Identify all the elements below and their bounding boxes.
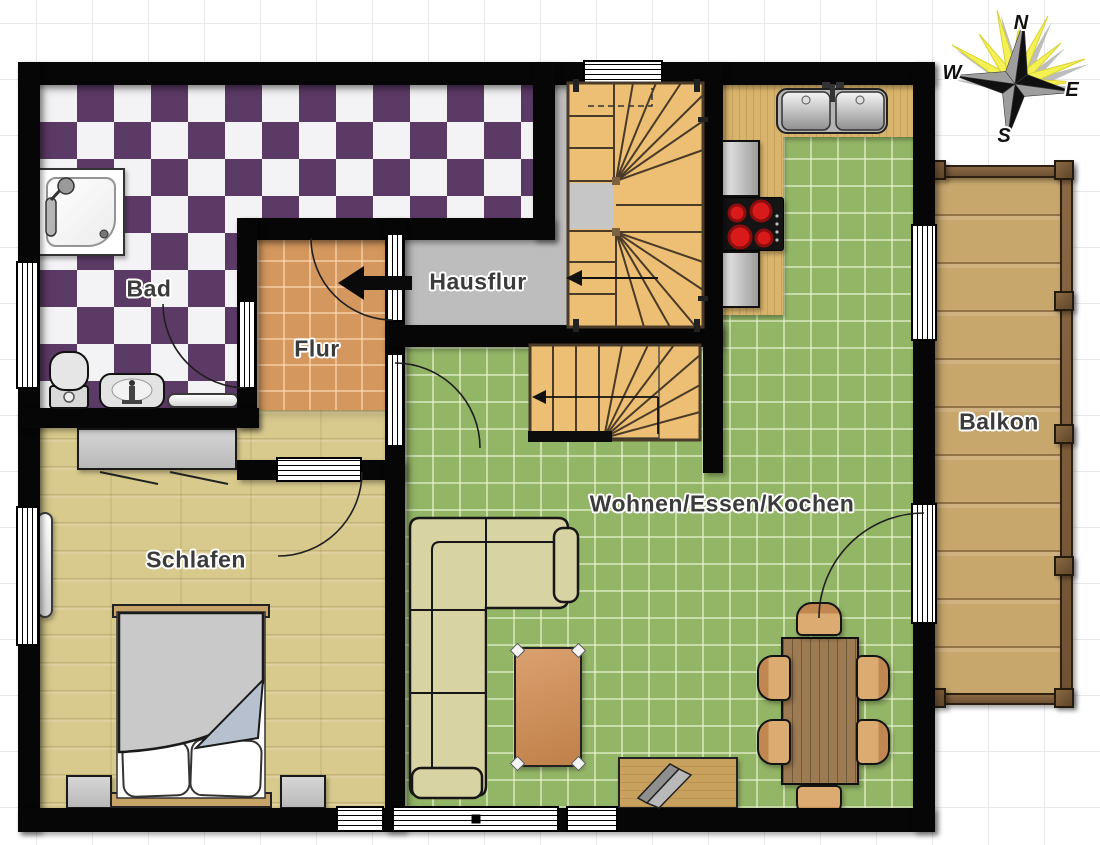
staircase-upper (566, 79, 708, 332)
room-label-balkon: Balkon (959, 409, 1039, 436)
sofa (410, 518, 578, 798)
compass-rose-icon: N E S W (943, 10, 1089, 148)
door-arc-bathroom (163, 304, 247, 388)
room-label-wohnen: Wohnen/Essen/Kochen (590, 491, 855, 518)
compass-label-e: E (1065, 79, 1079, 101)
room-label-hausflur: Hausflur (429, 269, 526, 296)
compass-label-w: W (943, 62, 964, 84)
bathroom-sink (100, 374, 164, 408)
door-arc-hall-living (395, 363, 480, 448)
staircase-lower (528, 345, 700, 442)
floorplan-annotations: N E S W (0, 0, 1100, 845)
toilet (50, 352, 88, 408)
entrance-arrow-icon (338, 266, 412, 300)
door-arc-balcony (819, 513, 924, 618)
compass-label-s: S (997, 125, 1011, 147)
kitchen-sink (777, 82, 887, 133)
cooktop-burners (729, 201, 779, 248)
bed (111, 605, 271, 807)
door-arc-bedroom (278, 472, 362, 556)
room-label-flur: Flur (294, 336, 339, 363)
compass-label-n: N (1014, 12, 1029, 34)
floor-plan: N E S W Bad Flur Hausflur Schlafen Wohne… (0, 0, 1100, 845)
laptop-icon (638, 764, 691, 808)
room-label-bad: Bad (127, 276, 172, 303)
shower-head-icon (46, 178, 108, 238)
wardrobe-door-marks (100, 472, 228, 484)
room-label-schlafen: Schlafen (146, 547, 246, 574)
